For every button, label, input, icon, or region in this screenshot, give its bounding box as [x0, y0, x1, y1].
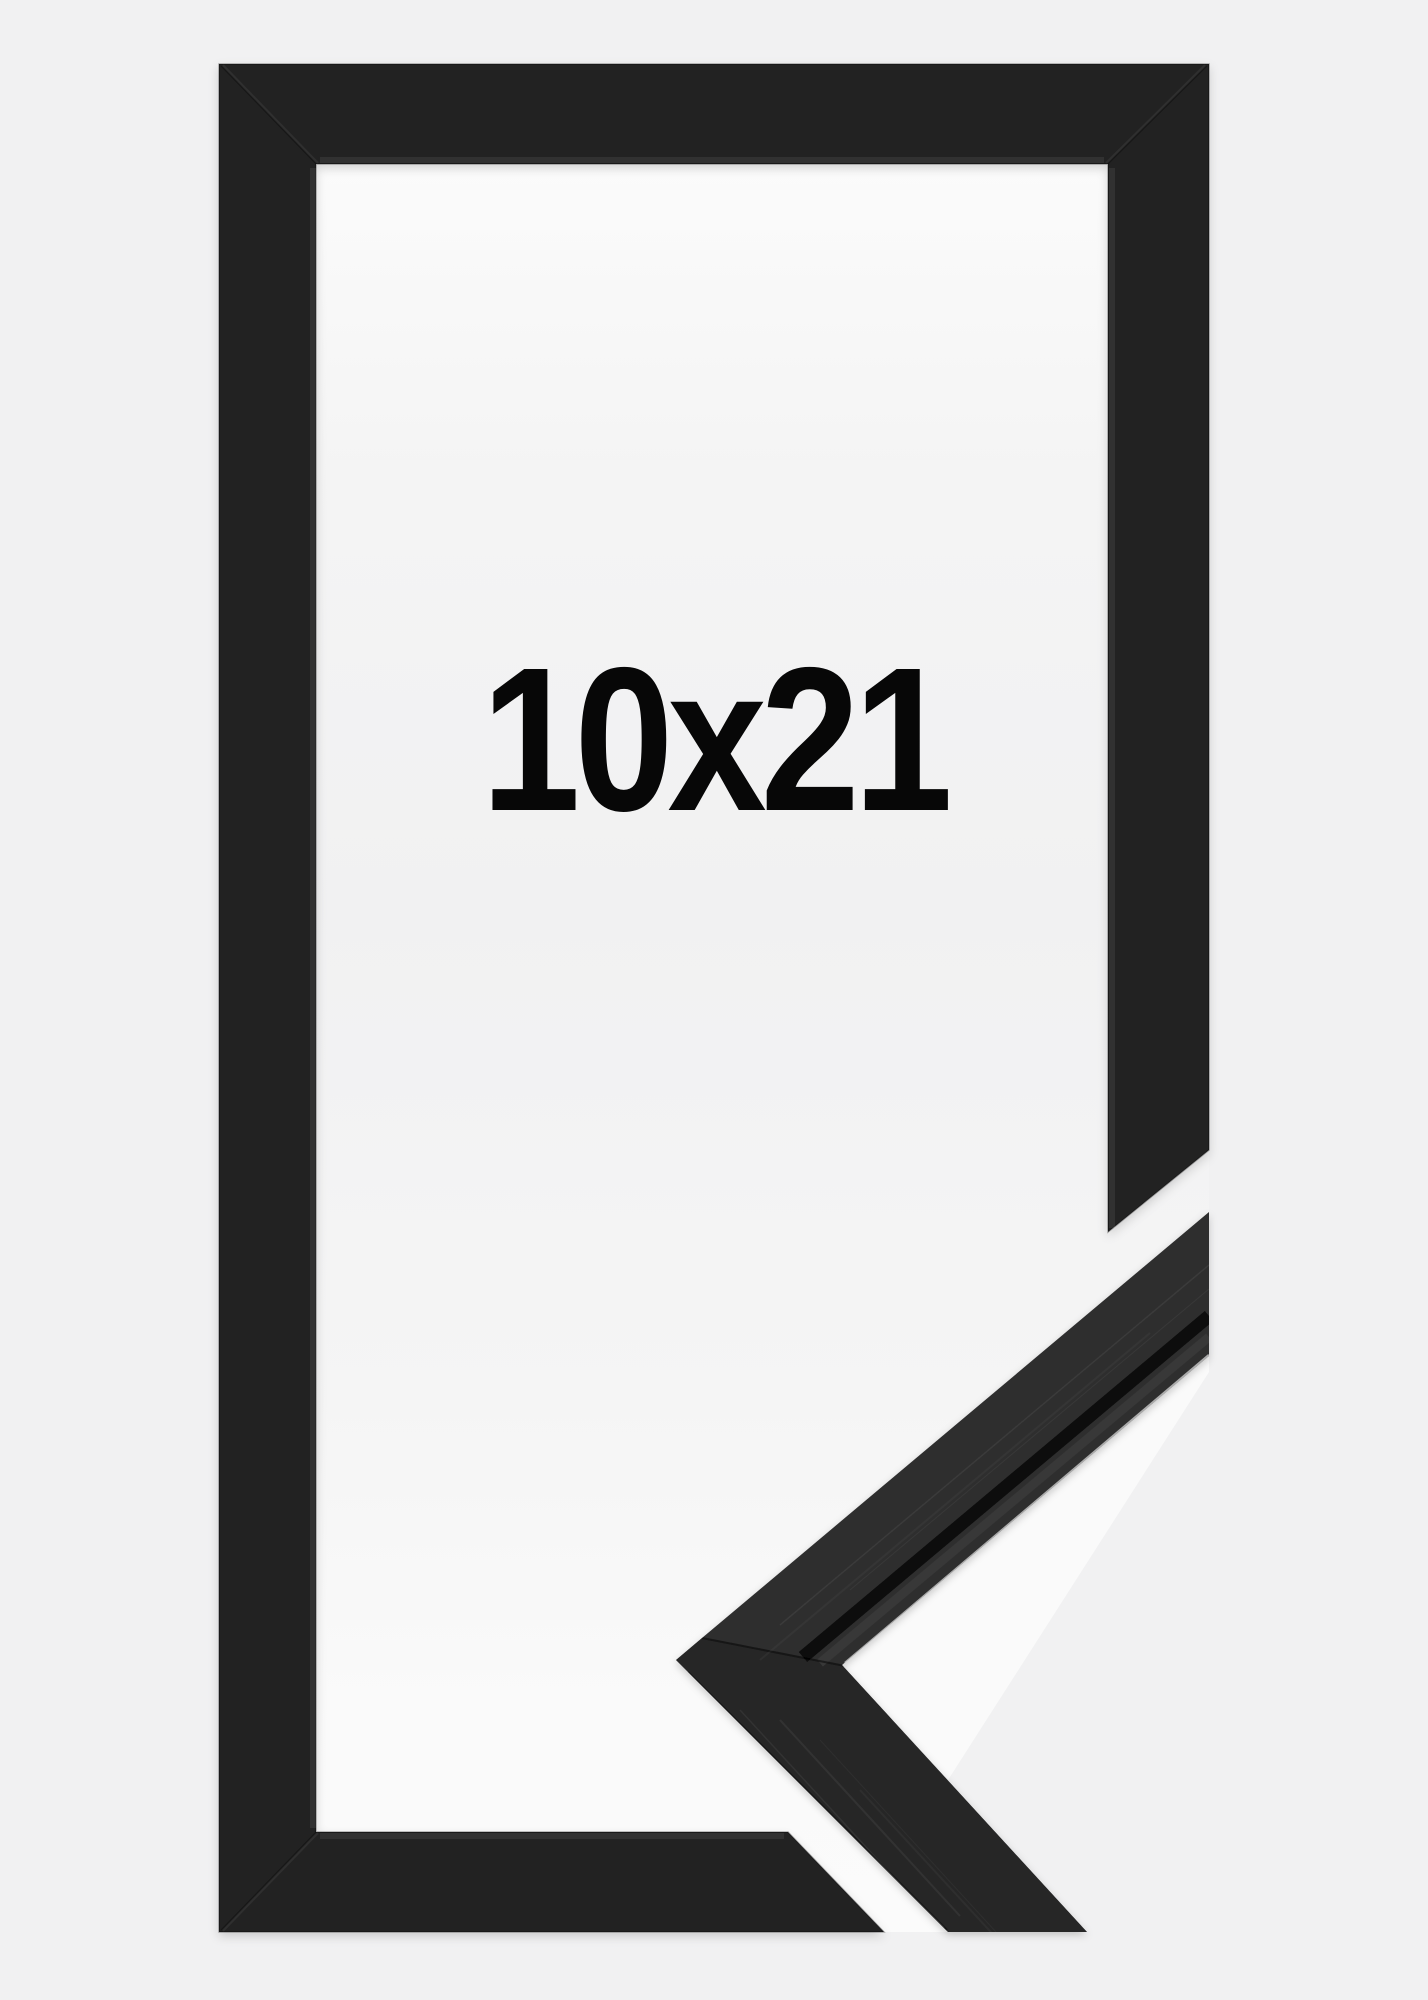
size-label: 10x21: [93, 637, 1335, 842]
frame-photo-graphic: [0, 0, 1428, 2000]
product-photo: 10x21: [0, 0, 1428, 2000]
